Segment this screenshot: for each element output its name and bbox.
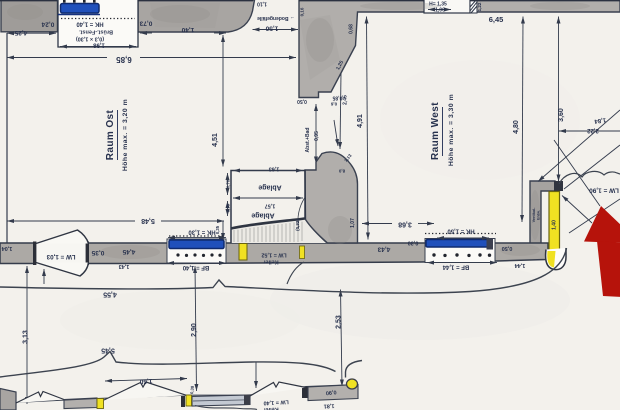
svg-text:Ablage: Ablage xyxy=(258,184,281,191)
svg-text:LW = 1,52: LW = 1,52 xyxy=(261,252,286,258)
svg-text:Abst.+Bad: Abst.+Bad xyxy=(305,128,311,153)
svg-text:1,60: 1,60 xyxy=(139,377,152,385)
svg-text:5,45: 5,45 xyxy=(101,347,115,354)
svg-text:4,43: 4,43 xyxy=(377,246,390,253)
svg-text:0,30: 0,30 xyxy=(408,240,419,246)
svg-text:HK = 1,40: HK = 1,40 xyxy=(76,21,104,27)
svg-text:0,35: 0,35 xyxy=(215,225,220,234)
svg-text:0,16: 0,16 xyxy=(300,7,305,16)
svg-text:Raum West: Raum West xyxy=(430,102,441,160)
svg-text:1,04: 1,04 xyxy=(1,245,13,251)
svg-text:0,90: 0,90 xyxy=(325,389,336,396)
svg-text:Höhe max. = 3,20 m: Höhe max. = 3,20 m xyxy=(122,99,129,171)
svg-text:3,13: 3,13 xyxy=(23,330,30,344)
svg-text:2,45: 2,45 xyxy=(343,95,349,105)
svg-text:1,81: 1,81 xyxy=(324,402,335,409)
svg-text:Raum Ost: Raum Ost xyxy=(105,110,116,161)
svg-text:1,07: 1,07 xyxy=(350,218,356,228)
svg-text:4,25: 4,25 xyxy=(14,29,27,36)
svg-text:4,51: 4,51 xyxy=(212,133,219,147)
svg-text:0,95: 0,95 xyxy=(226,203,231,212)
svg-text:0,35: 0,35 xyxy=(91,249,104,256)
svg-text:Keller: Keller xyxy=(263,259,279,265)
svg-text:5,48: 5,48 xyxy=(141,217,155,224)
svg-text:Ablage: Ablage xyxy=(251,212,274,219)
svg-text:HK = 1,30: HK = 1,30 xyxy=(188,229,216,235)
svg-text:Entw.: Entw. xyxy=(537,210,541,220)
svg-text:0,50: 0,50 xyxy=(502,245,513,251)
svg-text:1,98: 1,98 xyxy=(93,42,105,48)
svg-text:4,91: 4,91 xyxy=(357,114,364,128)
svg-text:1,00: 1,00 xyxy=(435,8,445,14)
svg-text:1,50: 1,50 xyxy=(265,25,278,32)
svg-text:0,50: 0,50 xyxy=(297,98,307,104)
svg-text:8,0: 8,0 xyxy=(338,169,345,174)
svg-text:BF = 1,44: BF = 1,44 xyxy=(442,264,469,270)
svg-text:1,43: 1,43 xyxy=(119,263,130,269)
svg-text:2,22: 2,22 xyxy=(587,127,599,133)
svg-text:2,90: 2,90 xyxy=(191,323,198,337)
svg-text:0,6: 0,6 xyxy=(330,102,337,107)
svg-text:0,38: 0,38 xyxy=(189,385,195,394)
svg-text:LW = 1,90: LW = 1,90 xyxy=(589,187,619,194)
svg-text:0,76: 0,76 xyxy=(226,179,231,188)
svg-text:4,80: 4,80 xyxy=(513,120,520,134)
svg-text:(0,3 × 1,30): (0,3 × 1,30) xyxy=(76,36,104,42)
svg-text:1,63: 1,63 xyxy=(269,166,280,172)
svg-text:BF = 1,40: BF = 1,40 xyxy=(182,264,209,270)
svg-text:3,60: 3,60 xyxy=(558,108,565,122)
svg-text:6,45: 6,45 xyxy=(489,15,504,24)
svg-text:1,40: 1,40 xyxy=(181,26,194,33)
svg-text:(0,32): (0,32) xyxy=(295,219,300,231)
svg-text:1,10: 1,10 xyxy=(257,1,267,7)
svg-text:6,85: 6,85 xyxy=(116,55,132,64)
svg-text:→ Bodengefälle: → Bodengefälle xyxy=(257,15,295,21)
svg-text:0,73: 0,73 xyxy=(139,20,152,27)
svg-text:4,45: 4,45 xyxy=(122,248,135,255)
svg-text:0,68: 0,68 xyxy=(349,24,355,34)
svg-text:1,40: 1,40 xyxy=(552,220,558,230)
svg-text:LW = 1,03: LW = 1,03 xyxy=(46,253,75,260)
svg-text:Brüst.-Fenst.: Brüst.-Fenst. xyxy=(79,29,113,35)
svg-text:1,57: 1,57 xyxy=(265,203,276,209)
svg-text:HK = 1,50: HK = 1,50 xyxy=(447,228,475,234)
svg-text:3,68: 3,68 xyxy=(398,221,412,228)
svg-text:1,22: 1,22 xyxy=(477,2,482,11)
svg-text:0,24: 0,24 xyxy=(41,21,54,28)
svg-text:Vertikal-: Vertikal- xyxy=(532,207,536,223)
svg-text:Höhe max. = 3,30 m: Höhe max. = 3,30 m xyxy=(448,94,455,166)
svg-text:0,95: 0,95 xyxy=(314,131,320,141)
svg-text:1,44: 1,44 xyxy=(514,262,526,268)
svg-text:2,53: 2,53 xyxy=(336,315,343,329)
svg-text:4,55: 4,55 xyxy=(103,291,117,298)
